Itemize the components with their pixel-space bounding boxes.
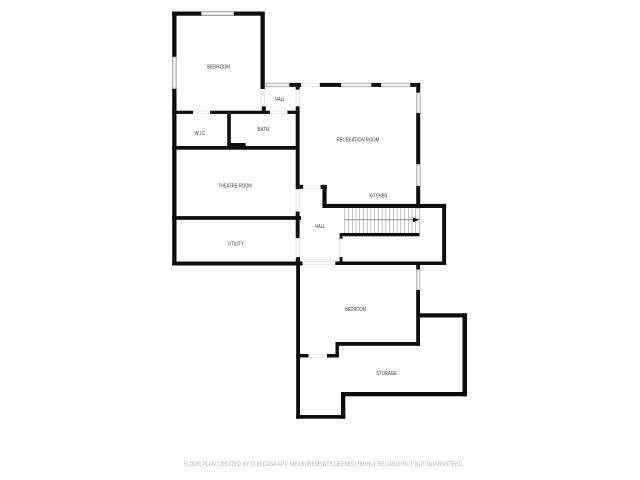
svg-text:STORAGE: STORAGE	[376, 371, 397, 377]
svg-text:BEDROOM: BEDROOM	[345, 307, 366, 313]
svg-text:BATH: BATH	[257, 127, 269, 133]
svg-text:UTILITY: UTILITY	[228, 242, 244, 248]
svg-text:KITCHEN: KITCHEN	[369, 193, 387, 199]
svg-text:FLOOR PLAN CREATED BY CUBICASA: FLOOR PLAN CREATED BY CUBICASA APP. MEAS…	[184, 461, 464, 468]
svg-text:HALL: HALL	[315, 224, 325, 230]
svg-text:HALL: HALL	[275, 97, 285, 103]
svg-text:BEDROOM: BEDROOM	[207, 64, 230, 70]
svg-text:THEATRE ROOM: THEATRE ROOM	[218, 184, 252, 190]
svg-text:W.I.C.: W.I.C.	[195, 131, 207, 137]
svg-text:RECREATION ROOM: RECREATION ROOM	[337, 138, 380, 144]
